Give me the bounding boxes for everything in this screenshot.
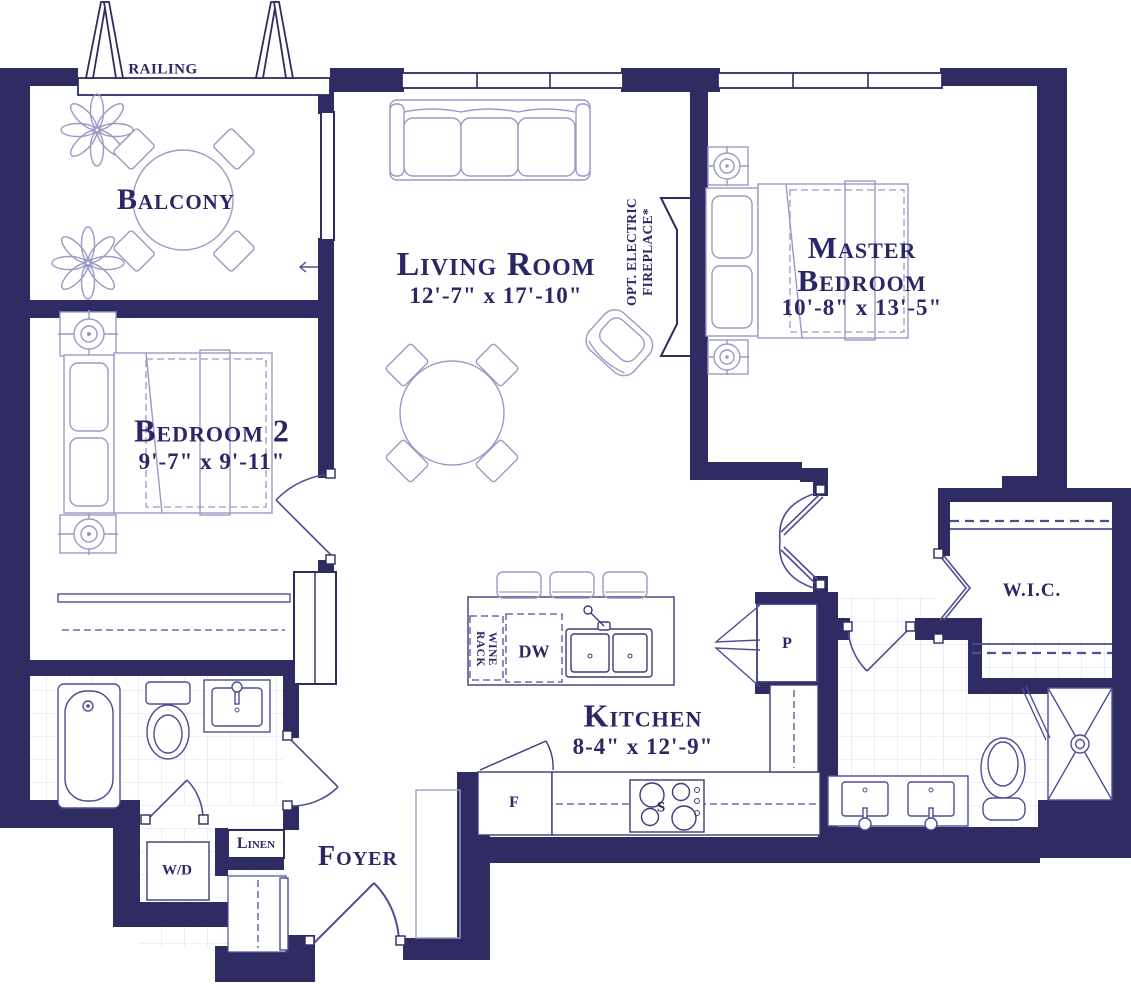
foyer-label: Foyer [318, 841, 398, 873]
fireplace-note-line2: FIREPLACE* [640, 198, 656, 306]
linen-label: Linen [237, 835, 275, 853]
dining-table-set [385, 343, 519, 483]
vanity-sink [204, 680, 270, 732]
entry-door [313, 883, 399, 944]
entry-closet [228, 876, 288, 952]
washer-dryer-label: W/D [162, 863, 192, 880]
railing [78, 2, 330, 95]
bathtub [58, 684, 120, 808]
master-double-doors [780, 492, 823, 590]
main-bath-door [291, 740, 338, 806]
kitchen-label: Kitchen [584, 698, 703, 735]
master-bedroom-dims: 10'-8" x 13'-5" [782, 295, 943, 321]
floor-plan-drawing [0, 0, 1131, 990]
wine-rack-label-line1: WINE [486, 631, 498, 667]
stove [630, 780, 704, 832]
wine-rack-label: WINE RACK [474, 631, 498, 667]
wic-bifold-door [940, 556, 970, 620]
fireplace-note: OPT. ELECTRIC FIREPLACE* [624, 198, 656, 306]
master-bedroom-label: Master Bedroom [797, 231, 926, 297]
floor-plan: RAILING Balcony Living Room 12'-7" x 17'… [0, 0, 1131, 990]
stove-label: S [657, 800, 665, 817]
sofa [390, 100, 590, 180]
master-bedroom-label-line1: Master [797, 231, 926, 264]
fireplace [661, 198, 690, 356]
toilet [146, 682, 190, 759]
fridge-label: F [509, 794, 519, 812]
wic-label: W.I.C. [1003, 580, 1062, 602]
toilet-2 [981, 738, 1025, 820]
foyer-console [416, 790, 460, 938]
kitchen-island [468, 572, 674, 685]
bedroom2-door [276, 474, 334, 558]
wine-rack-label-line2: RACK [474, 631, 486, 667]
living-room-dims: 12'-7" x 17'-10" [409, 283, 582, 309]
pantry-label: P [782, 635, 792, 653]
dishwasher-label: DW [519, 642, 550, 663]
balcony-label: Balcony [117, 183, 235, 217]
fireplace-note-line1: OPT. ELECTRIC [624, 198, 640, 306]
double-vanity [828, 776, 968, 830]
bedroom2-dims: 9'-7" x 9'-11" [139, 449, 286, 475]
pantry [716, 604, 817, 687]
master-bedroom-label-line2: Bedroom [797, 264, 926, 297]
living-room-label: Living Room [397, 246, 596, 284]
railing-label: RAILING [128, 62, 197, 79]
armchair [580, 304, 658, 381]
bedroom2-label: Bedroom 2 [134, 413, 290, 450]
kitchen-dims: 8-4" x 12'-9" [573, 734, 714, 760]
